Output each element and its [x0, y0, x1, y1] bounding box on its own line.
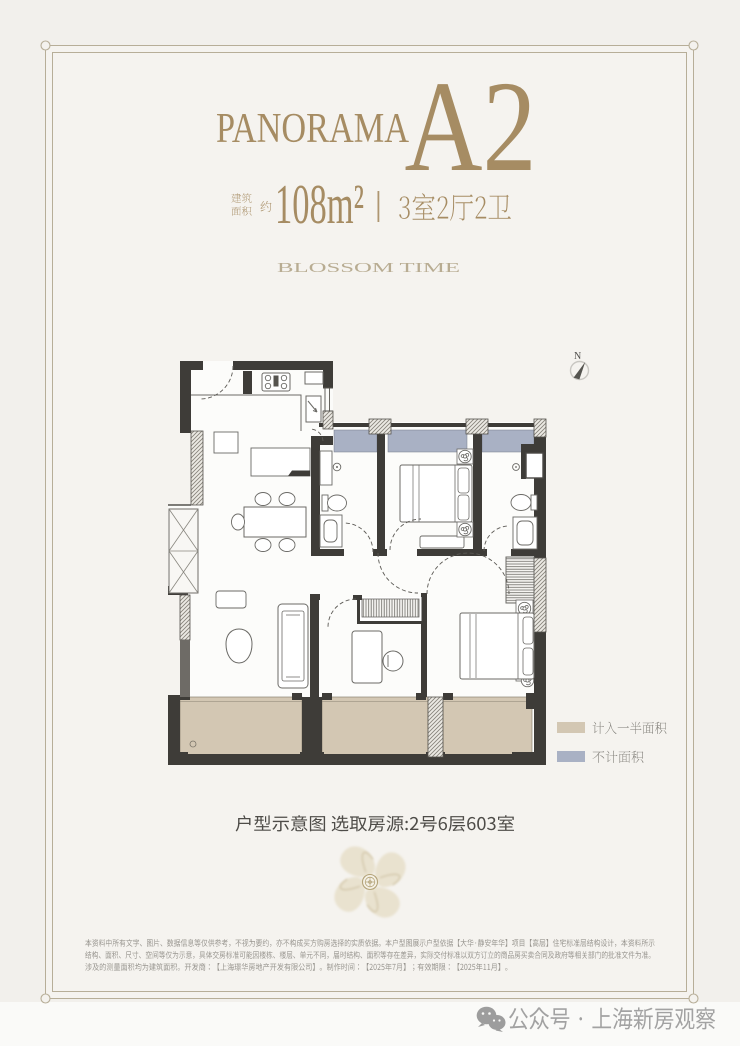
svg-text:N: N	[574, 351, 581, 362]
svg-text:A2: A2	[405, 55, 537, 199]
svg-text:BLOSSOM TIME: BLOSSOM TIME	[277, 261, 460, 276]
svg-text:PANORAMA: PANORAMA	[216, 106, 410, 152]
svg-text:108m²: 108m²	[275, 174, 364, 236]
